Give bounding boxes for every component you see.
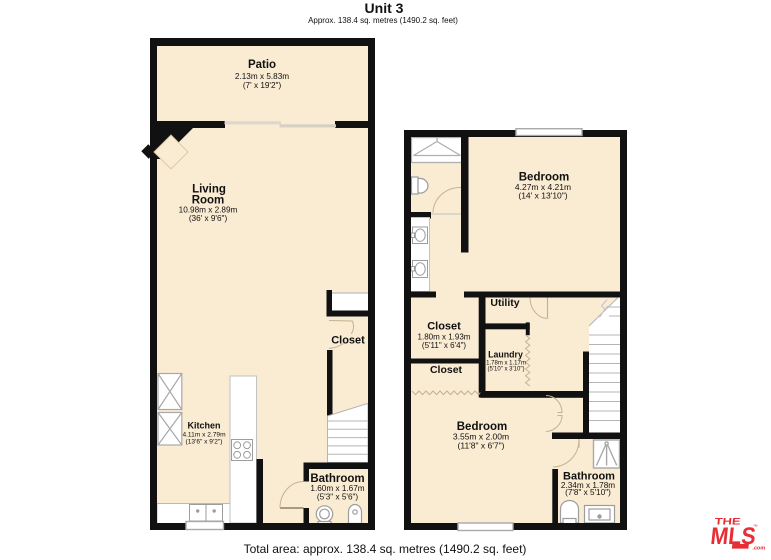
svg-text:Unit 3: Unit 3 bbox=[365, 0, 404, 16]
svg-text:(5'11" x 6'4"): (5'11" x 6'4") bbox=[422, 341, 466, 350]
svg-text:(14' x 13'10"): (14' x 13'10") bbox=[518, 191, 567, 201]
svg-text:(11'8" x 6'7"): (11'8" x 6'7") bbox=[458, 441, 505, 451]
svg-text:(5'3" x 5'6"): (5'3" x 5'6") bbox=[317, 493, 359, 502]
svg-text:.com: .com bbox=[752, 546, 766, 552]
svg-text:Laundry: Laundry bbox=[488, 350, 523, 360]
svg-text:Total area: approx. 138.4 sq.: Total area: approx. 138.4 sq. metres (14… bbox=[244, 542, 527, 556]
svg-text:(36' x 9'6"): (36' x 9'6") bbox=[189, 214, 228, 223]
svg-text:Closet: Closet bbox=[331, 335, 365, 347]
svg-text:4.11m x 2.79m: 4.11m x 2.79m bbox=[182, 432, 226, 439]
svg-text:™: ™ bbox=[752, 524, 758, 530]
svg-text:Closet: Closet bbox=[430, 364, 463, 376]
svg-text:(13'6" x 9'2"): (13'6" x 9'2") bbox=[186, 439, 223, 446]
svg-text:2.13m x 5.83m: 2.13m x 5.83m bbox=[235, 72, 289, 81]
svg-text:(5'10" x 3'10"): (5'10" x 3'10") bbox=[488, 367, 525, 373]
svg-text:Kitchen: Kitchen bbox=[187, 421, 220, 431]
svg-text:Patio: Patio bbox=[248, 59, 276, 71]
svg-text:(7'8" x 5'10"): (7'8" x 5'10") bbox=[565, 488, 611, 497]
svg-text:Utility: Utility bbox=[490, 297, 519, 309]
svg-text:Closet: Closet bbox=[427, 321, 461, 333]
svg-text:Approx. 138.4 sq. metres (1490: Approx. 138.4 sq. metres (1490.2 sq. fee… bbox=[308, 16, 458, 25]
svg-text:(7' x 19'2"): (7' x 19'2") bbox=[243, 81, 282, 90]
